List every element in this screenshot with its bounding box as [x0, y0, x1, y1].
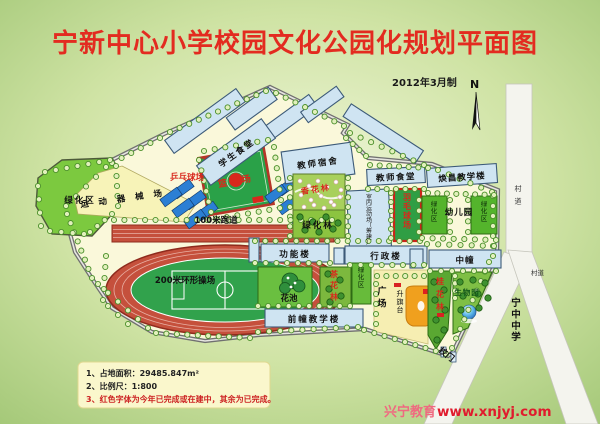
tree-icon [86, 161, 91, 166]
tree-icon [109, 211, 114, 216]
tree-icon [70, 230, 75, 235]
tree-icon [201, 148, 206, 153]
front-building-label: 前幢教学楼 [288, 314, 341, 325]
tree-icon [377, 163, 382, 168]
tree-icon [424, 241, 429, 246]
teacher-canteen-label: 教师食堂 [375, 171, 417, 184]
tree-icon [430, 236, 435, 241]
tree-icon [322, 326, 327, 331]
watermark: 兴宁教育 www.xnjyj.com [384, 404, 552, 420]
tree-icon [458, 242, 463, 247]
tree-icon [388, 208, 393, 213]
tree-icon [212, 147, 217, 152]
green-zone-mid-label: 绿化区 [358, 265, 365, 288]
tree-icon [369, 140, 374, 145]
track-100m-label: 100米跑道 [194, 215, 238, 226]
tree-icon [235, 101, 240, 106]
tree-icon [79, 248, 84, 253]
tree-icon [122, 217, 127, 222]
tree-icon [421, 273, 426, 278]
tree-icon [373, 321, 378, 326]
tree-icon [491, 243, 496, 248]
flag-platform-label: 升旗台 [397, 289, 404, 314]
tree-icon [75, 239, 80, 244]
tree-icon [419, 235, 424, 240]
tree-icon [36, 197, 41, 202]
green-zone-k2-label: 绿化区 [481, 199, 488, 222]
tree-icon [100, 297, 105, 302]
legend-line-1: 1、占地面积：29485.847m² [86, 368, 199, 378]
tree-icon [373, 311, 378, 316]
osmanthus-forest-label: 桂花林 [435, 276, 444, 312]
tree-icon [421, 186, 426, 191]
tree-icon [373, 281, 378, 286]
tree-icon [278, 217, 283, 222]
tree-icon [465, 197, 470, 202]
tree-icon [167, 129, 172, 134]
tree-icon [246, 217, 251, 222]
tree-icon [196, 157, 201, 162]
tree-icon [283, 238, 288, 243]
dense-tree-icon [476, 305, 482, 311]
watermark-site: www.xnjyj.com [437, 404, 552, 420]
tree-icon [64, 211, 69, 216]
tree-icon [416, 197, 421, 202]
dense-tree-icon [458, 307, 464, 313]
tree-icon [345, 214, 350, 219]
tree-icon [113, 163, 118, 168]
dense-tree-icon [485, 295, 491, 301]
tree-icon [365, 186, 370, 191]
tree-icon [254, 93, 259, 98]
tree-icon [143, 217, 148, 222]
tree-icon [357, 147, 362, 152]
tree-icon [423, 345, 428, 350]
tree-icon [119, 155, 124, 160]
tree-icon [451, 236, 456, 241]
tree-icon [470, 298, 475, 303]
tree-icon [252, 238, 257, 243]
flower-icon [334, 180, 338, 184]
tree-icon [454, 336, 459, 341]
tree-icon [361, 327, 366, 332]
tree-icon [97, 159, 102, 164]
tree-icon [223, 145, 228, 150]
tree-icon [287, 185, 292, 190]
tree-icon [273, 155, 278, 160]
date-note: 2012年3月制 [392, 76, 457, 89]
tree-icon [388, 217, 393, 222]
tree-icon [444, 191, 449, 196]
tree-icon [287, 224, 292, 229]
tree-icon [153, 217, 158, 222]
flower-icon [298, 179, 302, 183]
tree-icon [38, 223, 43, 228]
tree-icon [83, 184, 88, 189]
tree-icon [293, 100, 298, 105]
tree-icon [115, 299, 120, 304]
track-200m-label: 200米环形操场 [155, 275, 216, 286]
tree-icon [465, 219, 470, 224]
tree-icon [87, 229, 92, 234]
tree-icon [412, 186, 417, 191]
tree-icon [267, 329, 272, 334]
tree-icon [387, 163, 392, 168]
tree-icon [185, 332, 190, 337]
tree-icon [274, 166, 279, 171]
tree-icon [237, 335, 242, 340]
tree-icon [125, 308, 130, 313]
tree-icon [493, 237, 498, 242]
tree-icon [403, 186, 408, 191]
tree-icon [103, 253, 108, 258]
tree-icon [322, 114, 327, 119]
legend-line-2: 2、比例尺：1:800 [86, 381, 157, 391]
tree-icon [59, 229, 64, 234]
tree-icon [355, 324, 360, 329]
tree-icon [101, 286, 106, 291]
tree-icon [472, 237, 477, 242]
tree-icon [388, 199, 393, 204]
tree-icon [277, 187, 282, 192]
flower-icon [302, 205, 306, 209]
tree-icon [490, 223, 495, 228]
tree-icon [344, 325, 349, 330]
tree-icon [358, 135, 363, 140]
tree-icon [53, 167, 58, 172]
tree-icon [407, 238, 412, 243]
tree-icon [490, 253, 495, 258]
tree-icon [287, 233, 292, 238]
page-title: 宁新中心小学校园文化公园化规划平面图 [52, 28, 538, 59]
tree-icon [462, 237, 467, 242]
flower-icon [338, 195, 342, 199]
tree-icon [436, 242, 441, 247]
tree-icon [111, 217, 116, 222]
flower-icon [312, 203, 316, 207]
tree-icon [463, 192, 468, 197]
tree-icon [486, 259, 491, 264]
tree-icon [303, 105, 308, 110]
tree-icon [345, 195, 350, 200]
tree-icon [132, 217, 137, 222]
tree-icon [345, 224, 350, 229]
tree-icon [216, 334, 221, 339]
tree-icon [337, 303, 342, 308]
tree-icon [393, 186, 398, 191]
tree-icon [129, 150, 134, 155]
tree-icon [390, 149, 395, 154]
flower-icon [316, 179, 320, 183]
tree-icon [263, 260, 268, 265]
tree-icon [493, 268, 498, 273]
tree-icon [473, 192, 478, 197]
camellia-forest-label: 茶花林 [329, 269, 339, 301]
tree-icon [255, 303, 260, 308]
tree-icon [153, 330, 158, 335]
small-building-2 [334, 248, 344, 264]
tree-icon [317, 260, 322, 265]
tree-icon [81, 231, 86, 236]
tree-icon [369, 262, 374, 267]
tree-icon [314, 238, 319, 243]
tree-icon [345, 233, 350, 238]
tree-icon [382, 333, 387, 338]
tree-icon [345, 185, 350, 190]
tree-icon [138, 145, 143, 150]
dense-tree-icon [433, 317, 439, 323]
tree-icon [482, 268, 487, 273]
tree-icon [345, 175, 350, 180]
tree-icon [287, 175, 292, 180]
flower-icon [339, 188, 343, 192]
tree-icon [416, 219, 421, 224]
tree-icon [483, 237, 488, 242]
tree-icon [135, 317, 140, 322]
tree-icon [285, 260, 290, 265]
dense-tree-icon [470, 277, 476, 283]
ningzhong-school-label: 宁中中学 [511, 297, 521, 343]
tree-icon [356, 238, 361, 243]
tree-icon [306, 260, 311, 265]
tree-icon [376, 238, 381, 243]
tree-icon [447, 242, 452, 247]
tree-icon [283, 95, 288, 100]
watermark-brand: 兴宁教育 [384, 404, 436, 420]
tree-icon [244, 97, 249, 102]
tree-icon [267, 217, 272, 222]
tree-icon [400, 262, 405, 267]
tree-icon [411, 158, 416, 163]
tree-icon [379, 144, 384, 149]
tree-icon [452, 273, 457, 278]
tree-icon [491, 192, 496, 197]
tree-icon [375, 186, 380, 191]
tree-icon [64, 165, 69, 170]
tree-icon [384, 186, 389, 191]
tree-icon [75, 163, 80, 168]
tree-icon [363, 153, 368, 158]
tree-icon [35, 183, 40, 188]
tree-icon [447, 219, 452, 224]
kindergarten-label: 幼儿园 [445, 207, 474, 218]
badminton-court-label: 羽毛球场 [403, 193, 412, 230]
tree-icon [114, 183, 119, 188]
tree-icon [460, 268, 465, 273]
tree-icon [276, 176, 281, 181]
tree-icon [107, 157, 112, 162]
campus-plan-poster: 学生食堂 教师宿舍 篮球场 乒乓球场 运动器械场 100米跑道 200米环形操场… [0, 0, 600, 424]
tree-icon [304, 238, 309, 243]
dense-tree-icon [457, 279, 463, 285]
tree-icon [215, 109, 220, 114]
tree-icon [449, 268, 454, 273]
tree-icon [435, 191, 440, 196]
legend-line-3: 3、红色字体为今年已完成或在建中，其余为已完成。 [86, 394, 276, 404]
tree-icon [416, 208, 421, 213]
tree-icon [480, 243, 485, 248]
tree-icon [271, 144, 276, 149]
tree-icon [325, 238, 330, 243]
tree-icon [384, 273, 389, 278]
tree-icon [103, 164, 108, 169]
tree-icon [400, 153, 405, 158]
tree-icon [372, 330, 377, 335]
road-vertical [506, 84, 532, 254]
village-road-label-2: 村道 [531, 268, 545, 277]
tree-icon [174, 217, 179, 222]
tree-icon [343, 135, 348, 140]
legend: 1、占地面积：29485.847m² 2、比例尺：1:800 3、红色字体为今年… [78, 362, 276, 408]
tree-icon [347, 262, 352, 267]
flower-icon [319, 194, 323, 198]
tree-icon [425, 165, 430, 170]
tree-icon [307, 303, 312, 308]
tree-icon [68, 221, 73, 226]
tree-icon [367, 162, 372, 167]
tree-icon [196, 117, 201, 122]
tree-icon [388, 190, 393, 195]
tree-icon [441, 236, 446, 241]
tree-icon [95, 281, 100, 286]
tree-icon [227, 334, 232, 339]
tree-icon [263, 238, 268, 243]
tree-icon [300, 327, 305, 332]
tree-icon [294, 238, 299, 243]
tree-icon [447, 229, 452, 234]
tree-icon [379, 262, 384, 267]
tree-icon [164, 331, 169, 336]
tree-icon [393, 273, 398, 278]
tree-icon [295, 260, 300, 265]
tree-icon [396, 164, 401, 169]
tree-icon [82, 257, 87, 262]
dense-tree-icon [323, 214, 329, 220]
tree-icon [255, 329, 260, 334]
tree-icon [86, 266, 91, 271]
tree-icon [265, 137, 270, 142]
tree-icon [157, 135, 162, 140]
tree-icon [267, 207, 272, 212]
tree-icon [206, 333, 211, 338]
tree-icon [286, 303, 291, 308]
tree-icon [479, 185, 484, 190]
tree-icon [195, 333, 200, 338]
tree-icon [438, 268, 443, 273]
tree-icon [206, 199, 211, 204]
tree-icon [187, 121, 192, 126]
tree-icon [296, 303, 301, 308]
pingpong-court-label: 乒乓球场 [170, 172, 205, 183]
tree-icon [287, 204, 292, 209]
dense-tree-icon [335, 220, 341, 226]
tree-icon [163, 217, 168, 222]
tree-icon [274, 260, 279, 265]
tree-icon [247, 335, 252, 340]
dense-tree-icon [434, 337, 440, 343]
campus-map-svg: 学生食堂 教师宿舍 篮球场 乒乓球场 运动器械场 100米跑道 200米环形操场… [0, 0, 600, 424]
tree-icon [266, 303, 271, 308]
tree-icon [37, 210, 42, 215]
green-forest-label: 绿化林 [302, 220, 334, 231]
tree-icon [273, 90, 278, 95]
tree-icon [350, 141, 355, 146]
tree-icon [490, 203, 495, 208]
tree-icon [257, 217, 262, 222]
tree-icon [95, 223, 100, 228]
dense-tree-icon [338, 293, 344, 299]
tree-icon [145, 325, 150, 330]
tree-icon [462, 317, 467, 322]
tree-icon [278, 197, 283, 202]
tree-icon [125, 321, 130, 326]
function-building-label: 功能楼 [279, 249, 311, 260]
tree-icon [278, 328, 283, 333]
tree-icon [397, 238, 402, 243]
green-zone-west-label: 绿化区 [64, 195, 96, 206]
tree-icon [327, 260, 332, 265]
dense-tree-icon [297, 214, 303, 220]
tree-icon [177, 125, 182, 130]
tree-icon [105, 303, 110, 308]
tree-icon [287, 195, 292, 200]
tree-icon [490, 213, 495, 218]
tree-icon [206, 113, 211, 118]
tree-icon [277, 205, 282, 210]
tree-icon [42, 169, 47, 174]
tree-icon [105, 290, 110, 295]
tree-icon [435, 167, 440, 172]
tree-icon [449, 345, 454, 350]
tree-icon [263, 88, 268, 93]
tree-icon [332, 119, 337, 124]
tree-icon [458, 326, 463, 331]
tree-icon [411, 262, 416, 267]
tree-icon [421, 262, 426, 267]
tree-icon [482, 192, 487, 197]
tree-icon [93, 174, 98, 179]
tree-icon [345, 238, 350, 243]
tree-icon [335, 238, 340, 243]
tree-icon [225, 105, 230, 110]
tree-icon [374, 273, 379, 278]
red-mark [437, 313, 444, 317]
tree-icon [252, 260, 257, 265]
tree-icon [425, 190, 430, 195]
tree-icon [312, 109, 317, 114]
tree-icon [256, 209, 261, 214]
tree-icon [388, 226, 393, 231]
tree-icon [174, 332, 179, 337]
flower-pool-label: 花池 [280, 293, 298, 304]
tree-icon [115, 312, 120, 317]
admin-building-label: 行政楼 [369, 251, 402, 262]
tree-icon [102, 275, 107, 280]
tree-icon [412, 273, 417, 278]
tree-icon [288, 217, 293, 222]
tree-icon [390, 262, 395, 267]
tree-icon [402, 339, 407, 344]
tree-icon [341, 123, 346, 128]
tree-icon [317, 303, 322, 308]
green-zone-k1-label: 绿化区 [431, 199, 438, 222]
tree-icon [465, 229, 470, 234]
tree-icon [245, 211, 250, 216]
tree-icon [333, 326, 338, 331]
tree-icon [184, 217, 189, 222]
tree-icon [289, 328, 294, 333]
tree-icon [447, 197, 452, 202]
